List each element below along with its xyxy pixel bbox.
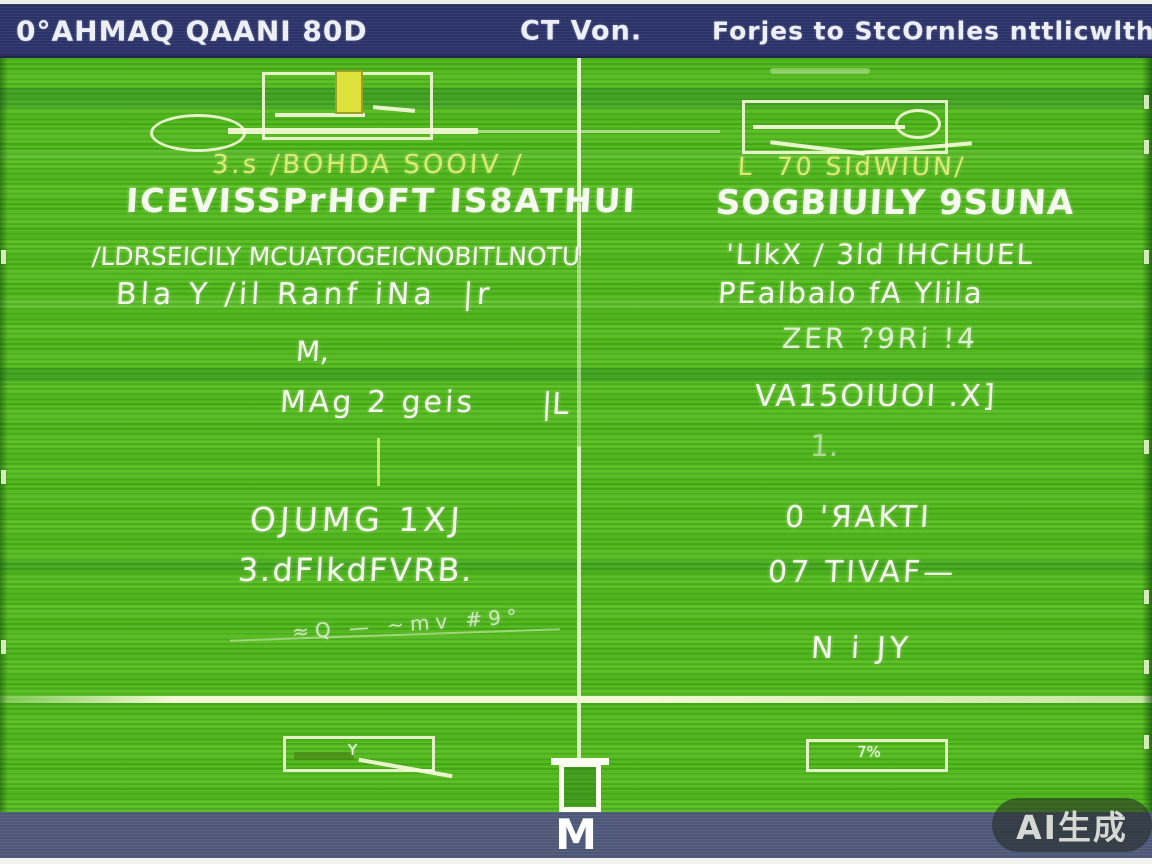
ruler-tick <box>1 250 6 264</box>
topbar-right-title: Forjes to StcOrnles nttlicwlths <box>712 17 1152 46</box>
bottom-bar: M <box>0 812 1152 858</box>
ruler-tick <box>1 470 6 484</box>
left-team-line6: MAg 2 geis <box>279 388 476 418</box>
left-team-line5: M, <box>295 338 330 366</box>
top-left-line <box>228 128 478 134</box>
field-tick-mark <box>377 438 380 486</box>
top-left-line-extension <box>478 130 720 133</box>
left-team-line7: OJUMG 1XJ <box>249 503 464 536</box>
left-edge-ruler <box>0 58 8 812</box>
halfway-line <box>577 58 581 764</box>
screenshot-root: 0°AHMAQ QAANI 80D CT Von. Forjes to StcO… <box>0 0 1152 864</box>
ruler-tick <box>1144 660 1149 674</box>
box-fill-strip <box>294 752 354 760</box>
yellow-card-icon <box>335 70 363 114</box>
ai-watermark-label: AI生成 <box>1016 801 1128 849</box>
right-team-subtitle: L 70 SIdWIUN/ <box>737 154 967 179</box>
bottom-right-box-label: 7% <box>857 745 881 760</box>
right-team-line10: N i JY <box>810 634 913 664</box>
pitch-field: 3.s /BOHDA SOOIV / ICEVISSPrHOFT IS8ATHU… <box>0 58 1152 812</box>
top-scoreboard-bar: 0°AHMAQ QAANI 80D CT Von. Forjes to StcO… <box>0 4 1152 58</box>
left-team-line8: 3.dFlkdFVRB. <box>237 554 474 586</box>
ai-watermark-badge: AI生成 <box>992 798 1152 852</box>
left-team-line6-mark: |L <box>541 390 569 420</box>
goal-icon <box>559 762 601 812</box>
topbar-left-title: 0°AHMAQ QAANI 80D <box>16 15 368 48</box>
bottom-left-box-label: Y <box>348 743 357 758</box>
right-team-line6: VA15OIUOI .X] <box>754 382 997 412</box>
goal-line <box>0 696 1152 703</box>
ruler-tick <box>1144 735 1149 749</box>
bottom-white-strip <box>0 858 1152 864</box>
ruler-tick <box>1144 590 1149 604</box>
ruler-tick <box>1144 95 1149 109</box>
bottom-right-box: 7% <box>806 739 948 772</box>
left-team-line4: Bla Y /il Ranf iNa |r <box>115 280 494 310</box>
light-smear <box>770 68 870 74</box>
right-team-line8: 0 'ЯAKTI <box>784 503 932 533</box>
bench-stroke <box>753 125 905 129</box>
ruler-tick <box>1 640 6 654</box>
left-team-title: ICEVISSPrHOFT IS8ATHUI <box>125 184 638 217</box>
bench-stroke <box>373 105 415 113</box>
ruler-tick <box>1144 250 1149 264</box>
field-light-band <box>0 150 1152 158</box>
field-dark-band <box>0 88 1152 108</box>
bench-loop <box>895 109 941 139</box>
left-team-line3: /LDRSEICILY MCUATOGEICNOBITLNOTU <box>91 244 580 269</box>
right-team-line3: 'LIkX / 3ld IHCHUEL <box>725 241 1035 269</box>
right-team-line4: PEalbalo fA Ylila <box>717 279 984 308</box>
topbar-center-title: CT Von. <box>520 16 642 47</box>
left-team-subtitle: 3.s /BOHDA SOOIV / <box>211 152 525 178</box>
right-team-line5: ZER ?9Ri !4 <box>781 325 979 353</box>
field-dark-band <box>0 560 1152 572</box>
ruler-tick <box>1144 140 1149 154</box>
right-team-title: SOGBIUILY 9SUNA <box>715 186 1075 220</box>
bottom-bar-label: M <box>555 814 597 856</box>
right-team-line7: 1. <box>809 432 839 462</box>
right-edge-ruler <box>1142 58 1152 812</box>
ruler-tick <box>1144 440 1149 454</box>
right-team-line9: 07 TIVAF— <box>767 558 957 588</box>
